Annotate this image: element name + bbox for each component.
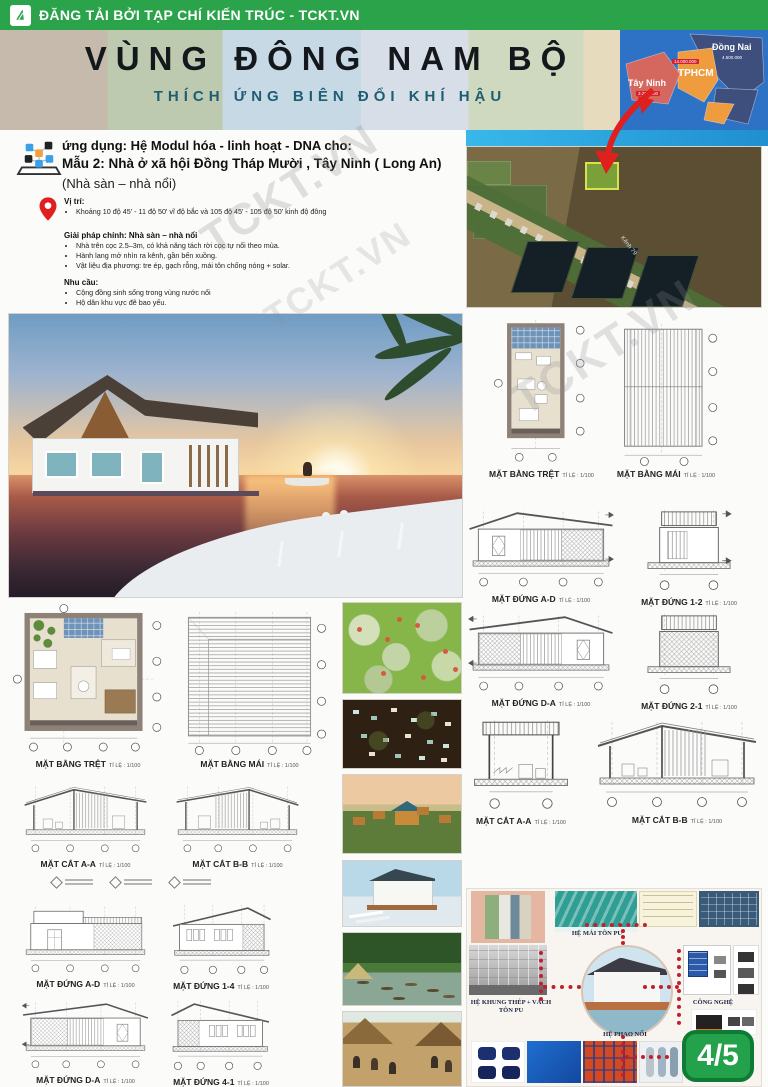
figure-caption: MẶT BẰNG TRỆTTỈ LỆ : 1/100 <box>489 469 594 479</box>
legend-diamond-icon <box>109 876 122 889</box>
figure-title: MẶT CẮT A-A <box>476 816 531 826</box>
model-line: Mẫu 2: Nhà ở xã hội Đồng Tháp Mười , Tây… <box>62 156 441 171</box>
drawing-left-elevation-da: MẶT ĐỨNG D-ATỈ LỆ : 1/100 <box>20 998 151 1085</box>
province-label-tphcm: TPHCM <box>678 68 714 79</box>
pv-grid <box>701 893 757 925</box>
legend-item <box>52 876 93 888</box>
center-house-deck <box>583 1002 671 1011</box>
site-pointer-arrow-icon <box>575 86 665 178</box>
province-label-dong-nai: Đồng Nai <box>712 42 752 52</box>
section-drawing <box>20 782 151 856</box>
figure-scale: TỈ LỆ : 1/100 <box>251 863 283 869</box>
inverter-boxes <box>714 956 726 964</box>
figure-title: MẶT BẰNG MÁI <box>200 759 264 769</box>
page-number-badge: 4/5 <box>682 1030 754 1082</box>
legend-text-lines <box>183 876 211 888</box>
person-silhouette <box>303 462 312 476</box>
poster: ĐĂNG TẢI BỞI TẠP CHÍ KIẾN TRÚC - TCKT.VN… <box>0 0 768 1087</box>
publisher-bar: ĐĂNG TẢI BỞI TẠP CHÍ KIẾN TRÚC - TCKT.VN <box>0 0 768 30</box>
needs-title: Nhu cầu: <box>64 278 98 287</box>
figure-scale: TỈ LỆ : 1/100 <box>237 1081 269 1087</box>
masterplan-diagram-image <box>342 602 462 694</box>
elevation-drawing <box>640 506 738 594</box>
roof-detail-card-image <box>639 891 697 927</box>
poster-subtitle: THÍCH ỨNG BIÊN ĐỔI KHÍ HẬU <box>60 88 600 105</box>
figure-caption: MẶT CẮT A-ATỈ LỆ : 1/100 <box>41 859 131 869</box>
drawing-left-elevation-41: MẶT ĐỨNG 4-1TỈ LỆ : 1/100 <box>168 996 274 1087</box>
figure-caption: MẶT ĐỨNG 2-1TỈ LỆ : 1/100 <box>641 701 737 711</box>
figure-title: MẶT CẮT B-B <box>192 859 248 869</box>
pv-system-diagram-image <box>683 945 731 995</box>
elevation-drawing <box>640 610 738 698</box>
legend-diamond-icon <box>50 876 63 889</box>
needs-item: Hộ dân khu vực đê bao yếu. <box>76 298 466 308</box>
market-scene-image <box>342 1011 462 1087</box>
tckt-logo-icon <box>10 5 31 26</box>
people <box>353 1056 360 1068</box>
figure-scale: TỈ LỆ : 1/100 <box>559 702 591 708</box>
section-drawing <box>172 782 303 856</box>
drawing-left-section-aa: MẶT CẮT A-ATỈ LỆ : 1/100 <box>20 782 151 869</box>
figure-title: MẶT CẮT A-A <box>41 859 96 869</box>
floor-plan-drawing <box>12 604 164 756</box>
technology-label: CÔNG NGHỆ <box>673 999 753 1007</box>
house-door <box>140 451 165 484</box>
figure-scale: TỈ LỆ : 1/100 <box>109 763 141 769</box>
connector-dotted-line <box>643 985 679 989</box>
flooded-village-aerial-image <box>342 699 462 769</box>
section-drawing <box>468 718 574 813</box>
elevation-drawing <box>466 610 616 695</box>
figure-caption: MẶT BẰNG MÁITỈ LỆ : 1/100 <box>200 759 298 769</box>
drawing-right-section-aa: MẶT CẮT A-ATỈ LỆ : 1/100 <box>468 718 574 826</box>
detail-lines <box>643 895 693 923</box>
location-pin-icon <box>38 196 58 222</box>
figure-title: MẶT ĐỨNG A-D <box>492 594 556 604</box>
drawing-right-elevation-ad: MẶT ĐỨNG A-DTỈ LỆ : 1/100 <box>466 506 616 604</box>
figure-caption: MẶT ĐỨNG A-DTỈ LỆ : 1/100 <box>492 594 590 604</box>
figure-scale: TỈ LỆ : 1/100 <box>534 820 566 826</box>
connector-dotted-line <box>625 1055 669 1059</box>
roof-system-label: HỆ MÁI TÔN PU <box>553 930 641 938</box>
pv-panel <box>688 951 708 977</box>
connector-dotted-line <box>543 985 581 989</box>
main-perspective-render <box>8 313 463 598</box>
floating-deck <box>367 905 437 910</box>
location-title: Vị trí: <box>64 197 84 206</box>
legend-item <box>170 876 211 888</box>
figure-caption: MẶT CẮT B-BTỈ LỆ : 1/100 <box>192 859 282 869</box>
connector-dotted-line <box>539 951 543 1001</box>
figure-scale: TỈ LỆ : 1/100 <box>99 863 131 869</box>
boat-hull <box>285 478 329 486</box>
figure-caption: MẶT BẰNG TRỆTTỈ LỆ : 1/100 <box>36 759 141 769</box>
figure-scale: TỈ LỆ : 1/100 <box>705 705 737 711</box>
poster-title: VÙNG ĐÔNG NAM BỘ <box>60 40 600 78</box>
drawing-right-roof-plan: MẶT BẰNG MÁITỈ LỆ : 1/100 <box>612 322 720 479</box>
figure-scale: TỈ LỆ : 1/100 <box>267 763 299 769</box>
controller-boxes <box>738 952 754 962</box>
wetland-render-image <box>342 774 462 854</box>
drawing-left-roof-plan: MẶT BẰNG MÁITỈ LỆ : 1/100 <box>172 610 327 769</box>
small-devices <box>728 1017 740 1026</box>
figure-title: MẶT ĐỨNG 1-2 <box>641 597 702 607</box>
figure-scale: TỈ LỆ : 1/100 <box>103 983 135 989</box>
plan-node-dots <box>357 627 362 632</box>
connector-dotted-line <box>621 929 625 945</box>
drawing-right-elevation-21: MẶT ĐỨNG 2-1TỈ LỆ : 1/100 <box>640 610 738 711</box>
floating-house <box>23 371 259 501</box>
solution-item: Nhà trên cọc 2.5–3m, có khả năng tách rờ… <box>76 241 466 251</box>
controller-diagram-image <box>733 945 759 995</box>
plan-blobs <box>343 603 461 693</box>
float-system-label: HỆ PHAO NỔI <box>585 1031 665 1039</box>
pontoon-grid <box>583 1041 637 1083</box>
roof-plan-drawing <box>172 610 327 756</box>
material-legend-callouts <box>52 876 252 888</box>
elevation-drawing <box>168 996 274 1074</box>
figure-caption: MẶT CẮT A-ATỈ LỆ : 1/100 <box>476 816 566 826</box>
modular-system-icon <box>16 138 62 176</box>
pu-wall-sample-image <box>471 891 545 943</box>
type-line: (Nhà sàn – nhà nổi) <box>62 176 176 191</box>
drawing-right-section-bb: MẶT CẮT B-BTỈ LỆ : 1/100 <box>592 716 762 825</box>
elevation-drawing <box>168 900 274 978</box>
drawing-right-elevation-12: MẶT ĐỨNG 1-2TỈ LỆ : 1/100 <box>640 506 738 607</box>
figure-title: MẶT ĐỨNG A-D <box>36 979 100 989</box>
solution-list: Nhà trên cọc 2.5–3m, có khả năng tách rờ… <box>64 241 466 271</box>
frame-floor <box>469 985 547 995</box>
solution-title: Giải pháp chính: Nhà sàn – nhà nổi <box>64 231 197 240</box>
vegetation-patches <box>343 700 461 768</box>
figure-caption: MẶT ĐỨNG 1-4TỈ LỆ : 1/100 <box>173 981 269 991</box>
roof-plan-drawing <box>612 322 720 466</box>
connector-dotted-line <box>585 923 647 927</box>
legend-item <box>111 876 152 888</box>
figure-scale: TỈ LỆ : 1/100 <box>237 985 269 991</box>
figure-title: MẶT BẰNG TRỆT <box>36 759 106 769</box>
drawing-right-ground-floor-plan: MẶT BẰNG TRỆTTỈ LỆ : 1/100 <box>489 318 594 479</box>
house-porch-columns <box>189 445 234 487</box>
blue-float-material-image <box>527 1041 581 1083</box>
solution-item: Vật liệu địa phương: tre ép, gạch rỗng, … <box>76 261 466 271</box>
figure-title: MẶT CẮT B-B <box>632 815 688 825</box>
barrels <box>478 1047 496 1060</box>
location-item: Khoảng 10 độ 45' - 11 độ 50' vĩ độ bắc v… <box>76 207 466 217</box>
figure-scale: TỈ LỆ : 1/100 <box>562 473 594 479</box>
figure-title: MẶT ĐỨNG 2-1 <box>641 701 702 711</box>
location-list: Khoảng 10 độ 45' - 11 độ 50' vĩ độ bắc v… <box>64 207 466 217</box>
solution-item: Hành lang mở nhìn ra kênh, gần bến xuồng… <box>76 251 466 261</box>
figure-caption: MẶT ĐỨNG D-ATỈ LỆ : 1/100 <box>492 698 591 708</box>
section-drawing <box>592 716 762 812</box>
figure-caption: MẶT ĐỨNG A-DTỈ LỆ : 1/100 <box>36 979 134 989</box>
figure-scale: TỈ LỆ : 1/100 <box>691 819 723 825</box>
figure-title: MẶT ĐỨNG 4-1 <box>173 1077 234 1087</box>
drawing-left-section-bb: MẶT CẮT B-BTỈ LỆ : 1/100 <box>172 782 303 869</box>
steel-frame-interior-image <box>469 945 547 995</box>
floating-hut <box>395 809 419 825</box>
figure-title: MẶT BẰNG MÁI <box>617 469 681 479</box>
needs-item: Cộng đồng sinh sống trong vùng nước nổi <box>76 288 466 298</box>
small-boat-with-person <box>285 470 329 486</box>
elevation-drawing <box>20 998 151 1072</box>
house-roof <box>23 371 259 444</box>
figure-scale: TỈ LỆ : 1/100 <box>705 601 737 607</box>
figure-title: MẶT ĐỨNG 1-4 <box>173 981 234 991</box>
figure-scale: TỈ LỆ : 1/100 <box>559 598 591 604</box>
figure-title: MẶT ĐỨNG D-A <box>36 1075 100 1085</box>
floor-plan-drawing <box>493 318 589 466</box>
figure-scale: TỈ LỆ : 1/100 <box>684 473 716 479</box>
house-body <box>373 879 433 907</box>
population-tphcm: 14.000.000 <box>672 59 699 64</box>
float-barrels-image <box>471 1041 525 1083</box>
figure-caption: MẶT BẰNG MÁITỈ LỆ : 1/100 <box>617 469 715 479</box>
solar-roof-photo-image <box>699 891 759 927</box>
publisher-text: ĐĂNG TẢI BỞI TẠP CHÍ KIẾN TRÚC - TCKT.VN <box>39 7 360 23</box>
drawing-left-elevation-14: MẶT ĐỨNG 1-4TỈ LỆ : 1/100 <box>168 900 274 991</box>
water-filter-image <box>639 1041 683 1083</box>
floating-house-render-image <box>342 860 462 927</box>
application-line: ứng dụng: Hệ Modul hóa - linh hoạt - DNA… <box>62 138 352 153</box>
population-dong-nai: 4.500.000 <box>722 55 742 60</box>
center-house-render <box>581 945 673 1037</box>
figure-title: MẶT BẰNG TRỆT <box>489 469 559 479</box>
filter-columns <box>646 1047 654 1077</box>
needs-list: Cộng đồng sinh sống trong vùng nước nổi … <box>64 288 466 308</box>
boats <box>357 981 369 984</box>
drawing-left-ground-floor-plan: MẶT BẰNG TRỆTTỈ LỆ : 1/100 <box>12 604 164 769</box>
figure-scale: TỈ LỆ : 1/100 <box>103 1079 135 1085</box>
elevation-drawing <box>20 902 151 976</box>
pontoon-assembly-image <box>583 1041 637 1083</box>
figure-title: MẶT ĐỨNG D-A <box>492 698 556 708</box>
drawing-right-elevation-da: MẶT ĐỨNG D-ATỈ LỆ : 1/100 <box>466 610 616 708</box>
legend-text-lines <box>65 876 93 888</box>
figure-caption: MẶT ĐỨNG D-ATỈ LỆ : 1/100 <box>36 1075 135 1085</box>
legend-text-lines <box>124 876 152 888</box>
house-body <box>32 438 239 493</box>
panel-ribs <box>555 891 637 927</box>
frame-system-label: HỆ KHUNG THÉP + VÁCH TÔN PU <box>467 999 555 1014</box>
elevation-drawing <box>466 506 616 591</box>
panel-layers <box>485 895 531 939</box>
legend-diamond-icon <box>168 876 181 889</box>
canal-boats-image <box>342 932 462 1006</box>
house-window <box>90 451 123 478</box>
figure-caption: MẶT CẮT B-BTỈ LỆ : 1/100 <box>632 815 722 825</box>
floating-deck <box>33 491 259 496</box>
figure-caption: MẶT ĐỨNG 4-1TỈ LỆ : 1/100 <box>173 1077 269 1087</box>
house-window <box>45 451 78 478</box>
drawing-left-elevation-ad: MẶT ĐỨNG A-DTỈ LỆ : 1/100 <box>20 902 151 989</box>
figure-caption: MẶT ĐỨNG 1-2TỈ LỆ : 1/100 <box>641 597 737 607</box>
distant-huts <box>353 817 365 825</box>
